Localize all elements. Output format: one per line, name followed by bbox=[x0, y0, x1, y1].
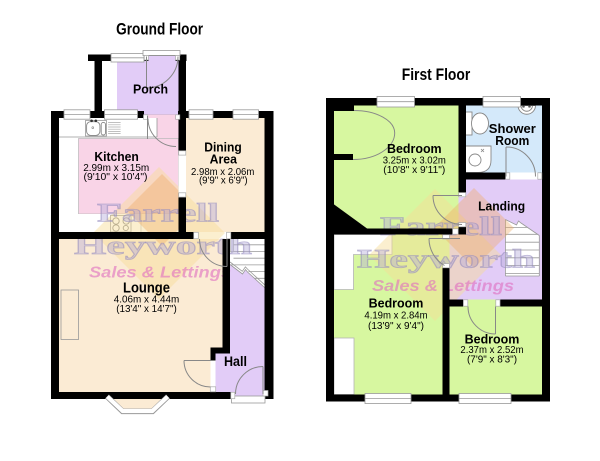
svg-text:Ground Floor: Ground Floor bbox=[116, 20, 203, 39]
svg-text:Area: Area bbox=[210, 152, 238, 167]
svg-text:Landing: Landing bbox=[478, 198, 525, 213]
svg-text:Bedroom: Bedroom bbox=[387, 141, 442, 156]
svg-text:Kitchen: Kitchen bbox=[94, 149, 139, 164]
svg-text:Bedroom: Bedroom bbox=[369, 296, 424, 311]
svg-text:(7'9" x 8'3"): (7'9" x 8'3") bbox=[467, 354, 517, 365]
svg-text:First Floor: First Floor bbox=[402, 65, 471, 84]
svg-text:(9'10" x 10'4"): (9'10" x 10'4") bbox=[84, 172, 148, 183]
svg-text:(13'4" x 14'7"): (13'4" x 14'7") bbox=[116, 304, 177, 315]
svg-text:Porch: Porch bbox=[133, 82, 168, 97]
svg-text:Hall: Hall bbox=[224, 354, 247, 369]
svg-text:(10'8" x 9'11"): (10'8" x 9'11") bbox=[383, 165, 445, 176]
svg-text:(13'9" x 9'4"): (13'9" x 9'4") bbox=[368, 321, 424, 332]
svg-text:(9'9" x 6'9"): (9'9" x 6'9") bbox=[199, 176, 248, 187]
svg-text:Room: Room bbox=[495, 133, 529, 148]
